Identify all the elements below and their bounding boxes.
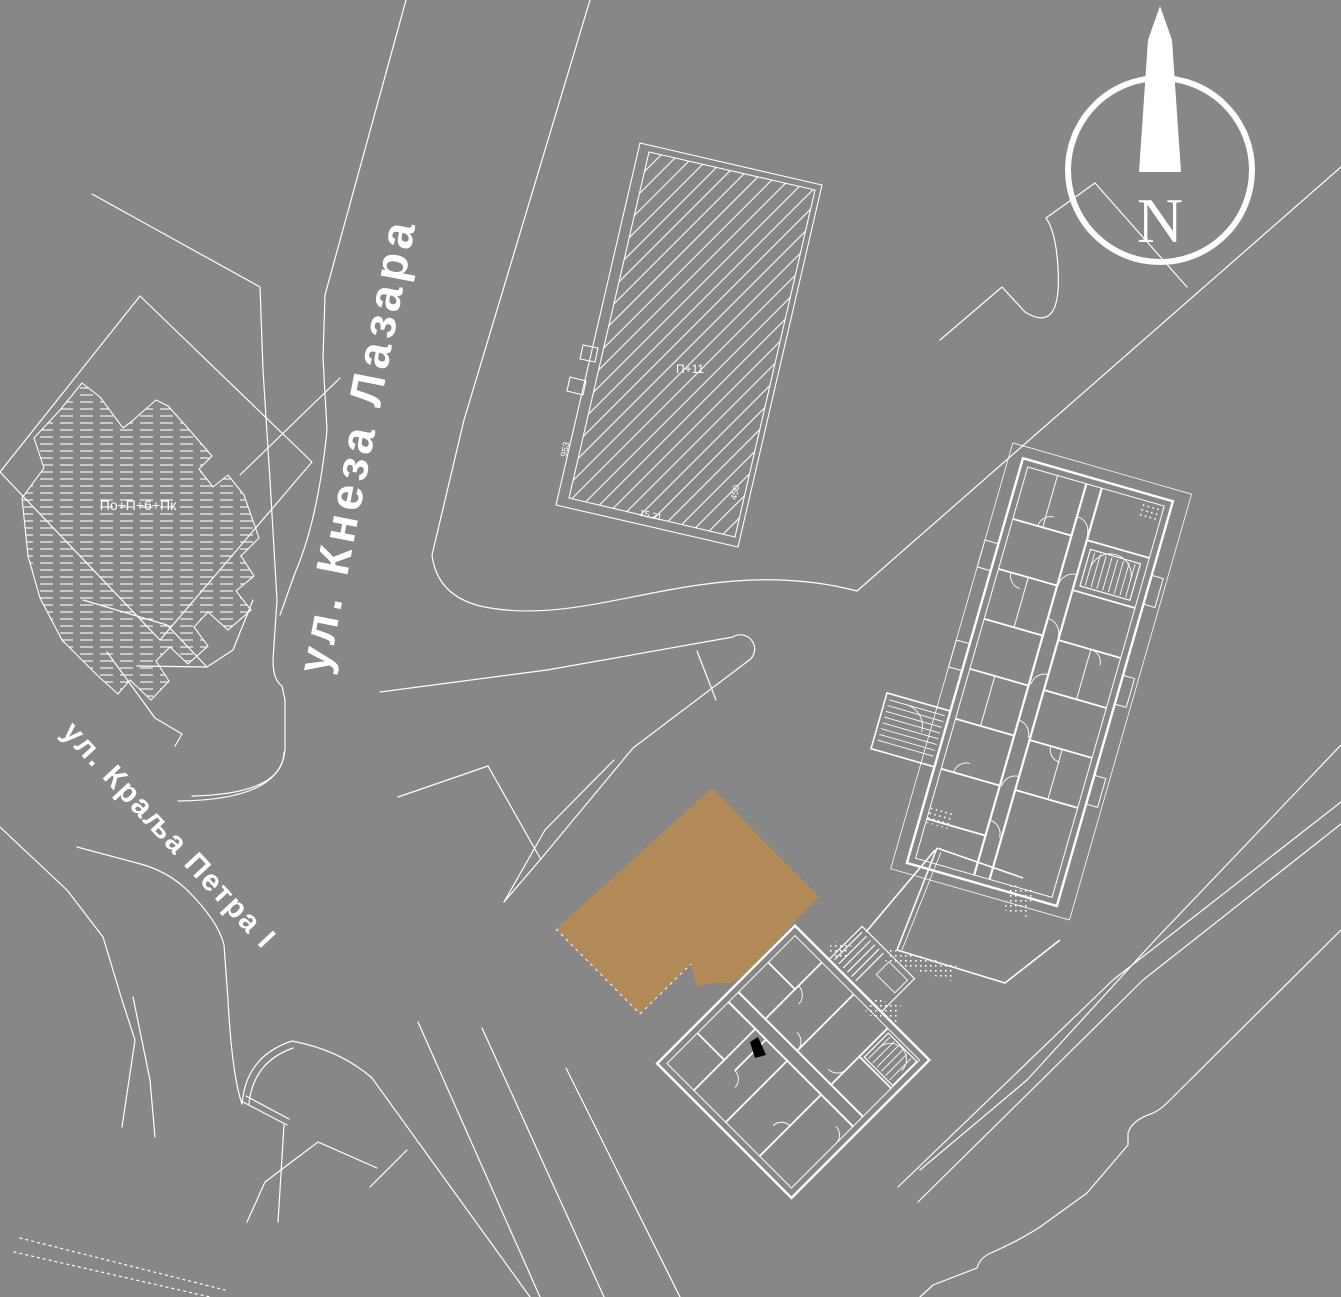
building-west-label: По+П+6+Пк bbox=[100, 497, 177, 513]
compass-north-label: N bbox=[1137, 185, 1183, 256]
building-p11-label: П+11 bbox=[676, 362, 704, 376]
site-plan-canvas: N ул. Кнеза Лазара ул. Краља Петра I П+1… bbox=[0, 0, 1341, 1297]
